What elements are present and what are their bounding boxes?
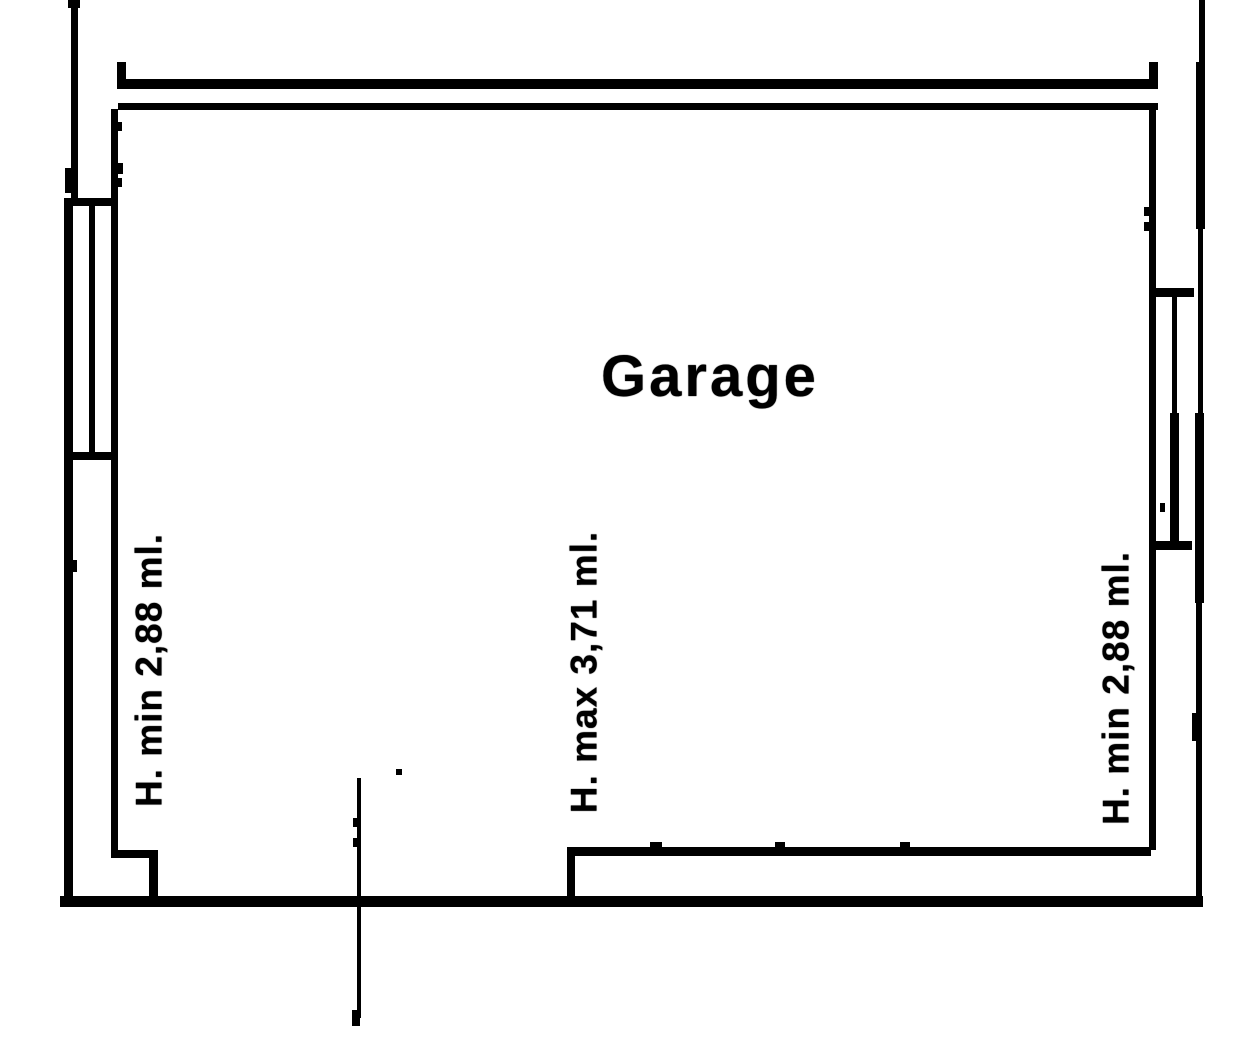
room-label: Garage [601, 348, 819, 406]
window-right-bottom-cap [1156, 541, 1192, 550]
wall-outer-left [64, 198, 73, 907]
scan-tick [118, 178, 122, 187]
wall-top-bar-right-stub [1149, 62, 1158, 81]
wall-inner-left [111, 109, 118, 850]
scan-tick [1144, 207, 1149, 216]
wall-outer-right-mid-thick [1195, 413, 1204, 603]
window-left-bottom-cap [72, 452, 116, 460]
section-line-foot [352, 1010, 360, 1026]
window-right-mullion-thick [1170, 413, 1179, 550]
garage-floor-plan: Garage H. min 2,88 ml. H. max 3,71 ml. H… [0, 0, 1256, 1055]
height-annotation-left: H. min 2,88 ml. [131, 533, 168, 807]
section-line [357, 778, 361, 1018]
scan-tick [353, 818, 357, 827]
wall-top-bar-left-stub [117, 62, 126, 81]
wall-outer-right-lower [1196, 600, 1202, 900]
scan-tick [1192, 713, 1196, 741]
wall-top-bar [117, 79, 1158, 89]
scan-tick [650, 842, 662, 847]
scan-tick [118, 122, 122, 131]
scan-tick [900, 842, 910, 847]
step-bottom-center-vertical [567, 851, 575, 903]
scan-tick [73, 560, 77, 572]
wall-top-left-vertical [71, 0, 78, 203]
wall-top-inner-line [118, 103, 1158, 110]
window-right-mullion-thin [1172, 295, 1177, 417]
wall-top-right-vertical-thick [1196, 62, 1205, 229]
scan-tick [118, 163, 123, 174]
scan-tick [1144, 222, 1149, 231]
wall-inner-bottom [567, 847, 1151, 856]
scan-tick [353, 838, 357, 847]
wall-top-left-vertical-bump [65, 168, 71, 193]
height-annotation-center: H. max 3,71 ml. [566, 531, 603, 813]
window-left-mullion [89, 205, 95, 456]
mark-dot [396, 769, 402, 775]
scan-tick [775, 842, 785, 847]
scan-tick [1160, 503, 1165, 512]
wall-inner-right [1149, 109, 1156, 850]
height-annotation-right: H. min 2,88 ml. [1098, 551, 1135, 825]
wall-outer-bottom [60, 896, 1203, 907]
wall-outer-right-mid-thin [1198, 228, 1203, 415]
wall-top-right-vertical-thin [1199, 0, 1205, 64]
